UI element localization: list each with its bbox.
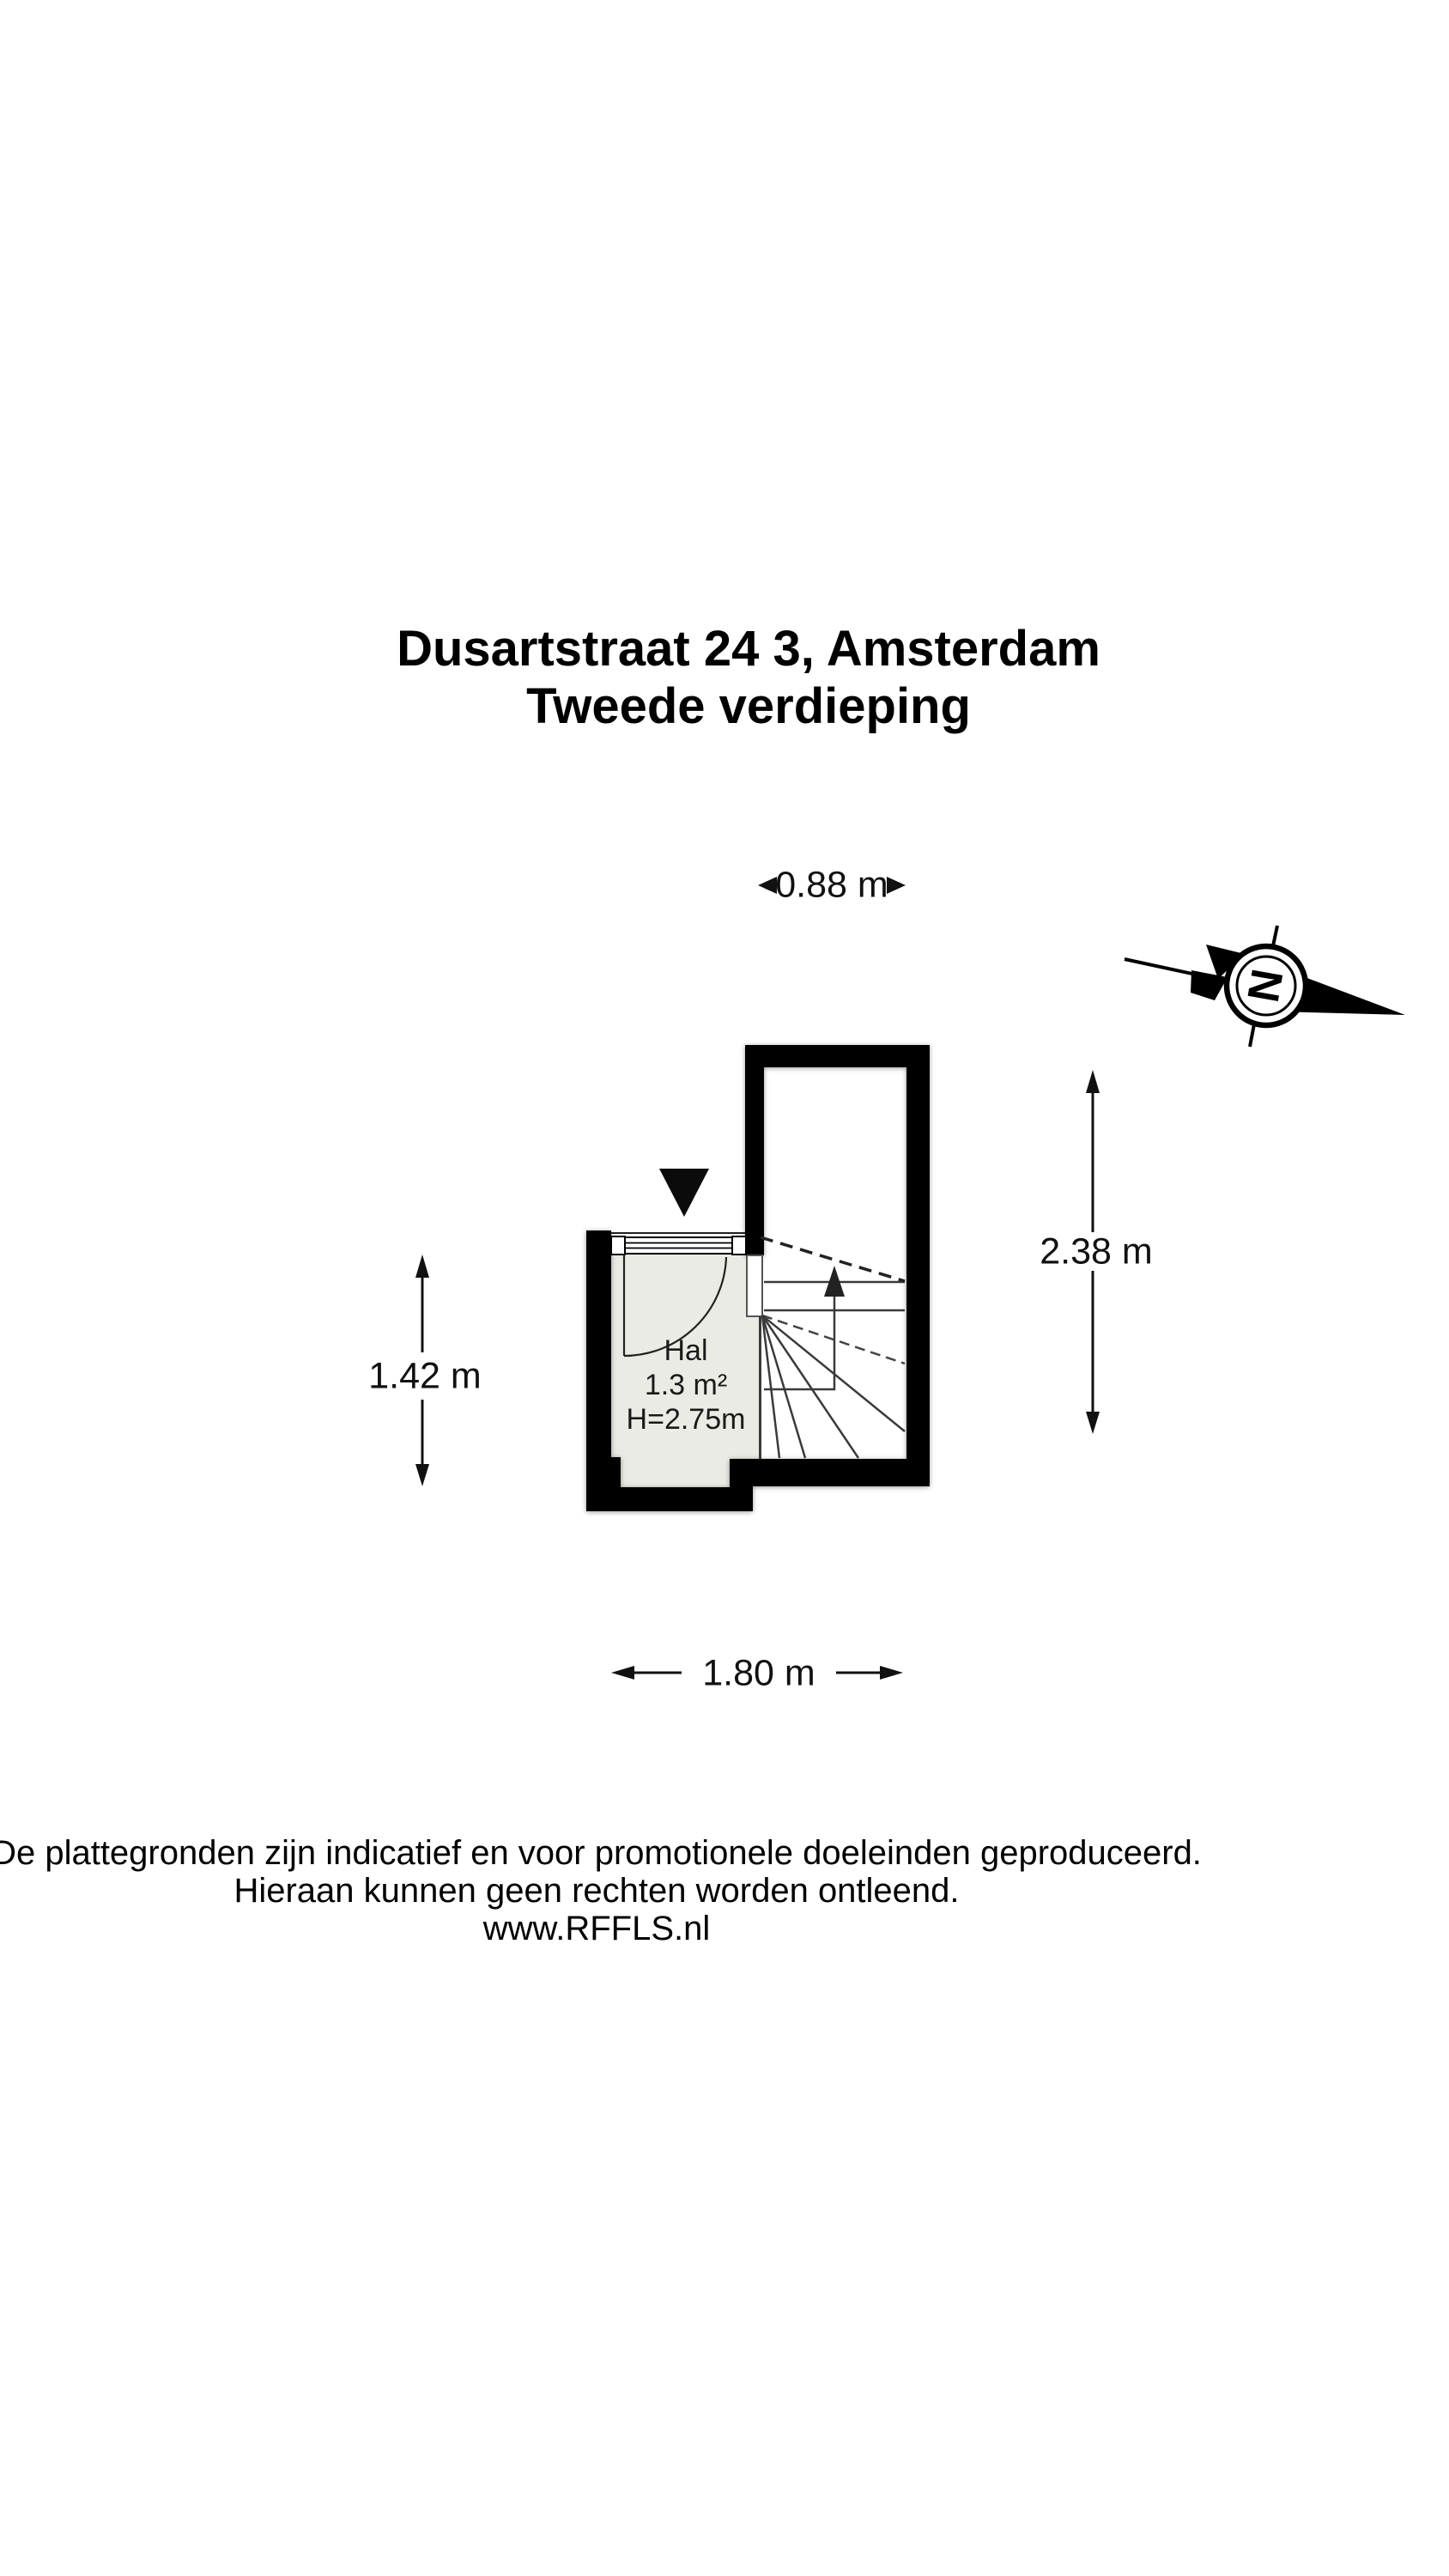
dimension-arrow-down-icon [1086,1412,1100,1434]
room-ceiling-height: H=2.75m [627,1402,746,1437]
room-area: 1.3 m² [627,1368,746,1402]
wall-stairwell-right [906,1045,930,1486]
doorway-jamb [747,1255,762,1316]
dimension-label-left: 1.42 m [368,1356,481,1398]
wall-stairwell-left [745,1045,764,1255]
frame-post-right [732,1236,746,1255]
dimension-label-top: 0.88 m [775,865,888,907]
room-label: Hal 1.3 m² H=2.75m [627,1334,746,1437]
room-name: Hal [627,1334,746,1368]
dimension-label-right: 2.38 m [1040,1231,1152,1273]
floorplan-page: Dusartstraat 24 3, Amsterdam Tweede verd… [0,0,1449,2576]
frame-post-left [611,1236,625,1255]
disclaimer-line-2: Hieraan kunnen geen rechten worden ontle… [0,1872,1202,1910]
stairwell-floor [764,1067,906,1459]
wall-stairwell-bottom [730,1459,930,1486]
wall-hal-bottom [586,1487,753,1511]
dimension-arrow-left-icon [758,877,777,894]
floorplan-drawing: N [0,0,1449,2576]
hal-floor-notch [621,1462,730,1488]
north-compass-icon: N [1125,926,1405,1047]
dimension-arrow-up-icon [1086,1070,1100,1093]
frame-band [611,1237,747,1254]
entrance-arrow-icon [659,1169,709,1217]
wall-stairwell-top [747,1045,930,1067]
wall-hal-right-step [730,1460,753,1511]
footer-disclaimer: De plattegronden zijn indicatief en voor… [0,1834,1202,1947]
dimension-arrow-down-icon [415,1464,429,1486]
dimension-arrow-right-icon [887,877,906,894]
dimension-arrow-left-icon [611,1666,634,1680]
entrance-door-frame [611,1233,747,1255]
dimension-arrow-right-icon [880,1666,903,1680]
disclaimer-line-1: De plattegronden zijn indicatief en voor… [0,1834,1202,1872]
dimension-arrow-up-icon [415,1255,429,1278]
dimension-label-bottom: 1.80 m [702,1653,815,1695]
disclaimer-website: www.RFFLS.nl [0,1910,1202,1947]
